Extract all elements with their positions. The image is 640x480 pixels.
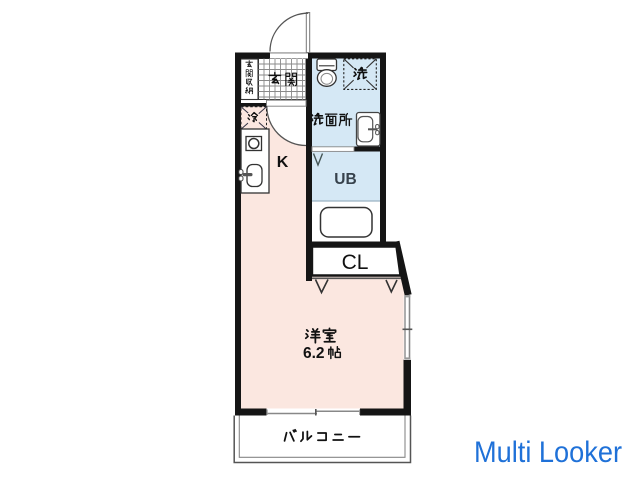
svg-text:CL: CL: [342, 251, 369, 274]
svg-text:Multi Looker: Multi Looker: [474, 436, 622, 469]
svg-text:K: K: [277, 154, 289, 171]
svg-text:6.2: 6.2: [303, 345, 325, 362]
svg-text:UB: UB: [334, 171, 356, 188]
